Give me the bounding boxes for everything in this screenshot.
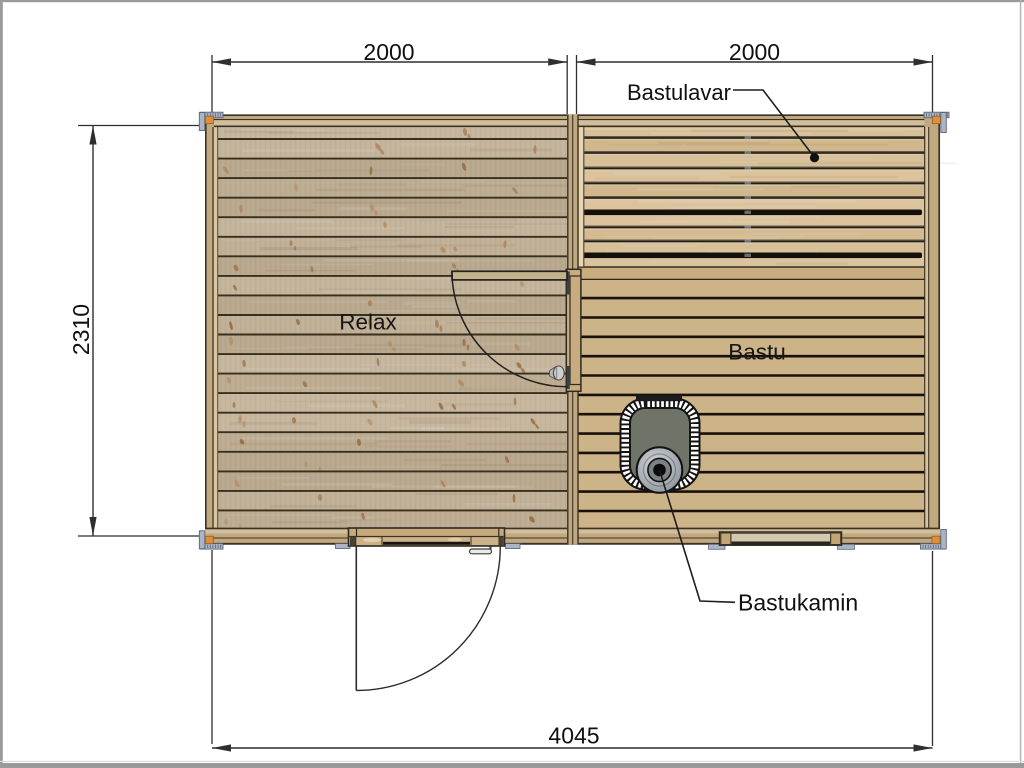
svg-text:2310: 2310	[68, 304, 94, 355]
svg-text:Bastukamin: Bastukamin	[738, 590, 858, 616]
svg-text:2000: 2000	[729, 39, 780, 65]
svg-text:2000: 2000	[363, 39, 414, 65]
svg-text:Relax: Relax	[339, 310, 397, 335]
svg-text:4045: 4045	[548, 723, 599, 749]
svg-text:Bastulavar: Bastulavar	[627, 80, 731, 105]
svg-text:Bastu: Bastu	[728, 340, 786, 365]
